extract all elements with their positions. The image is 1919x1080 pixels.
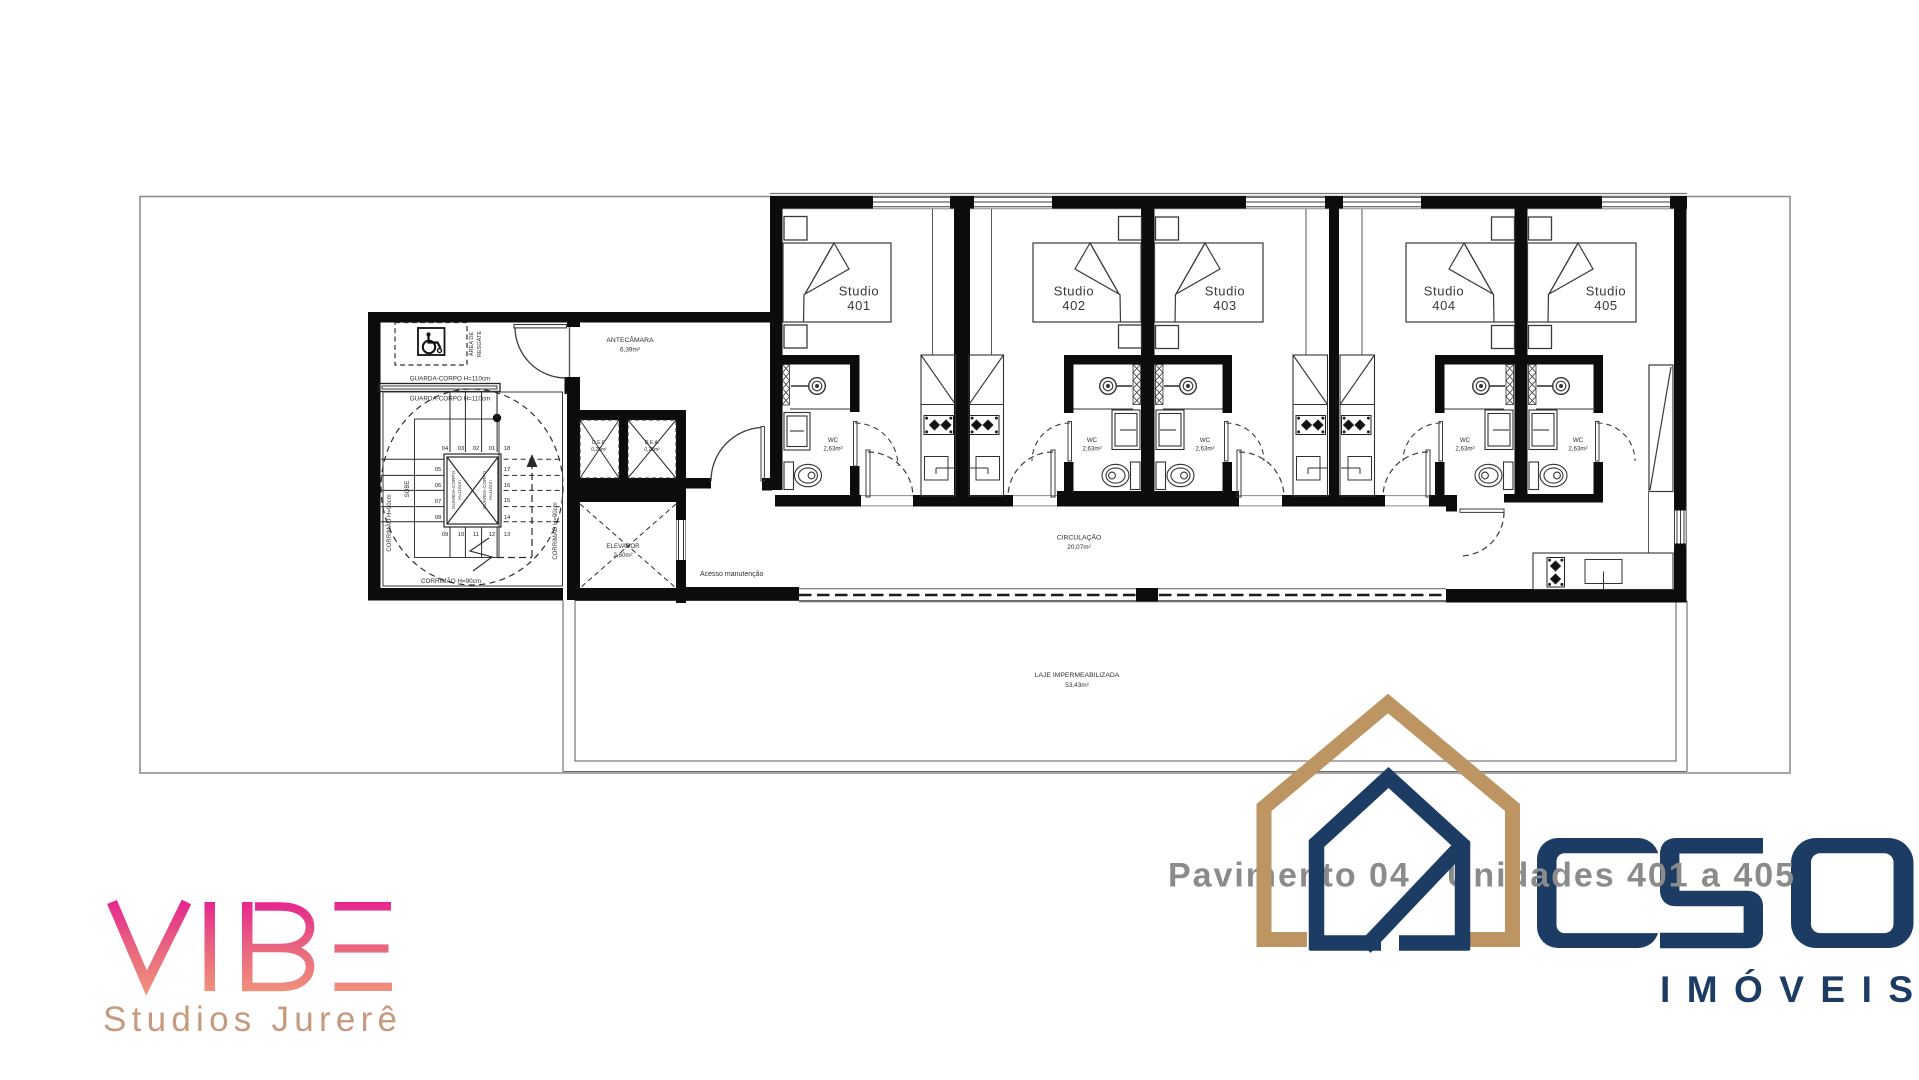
svg-text:405: 405 (1594, 298, 1618, 313)
svg-text:Acesso manutenção: Acesso manutenção (700, 571, 764, 578)
svg-text:11: 11 (473, 532, 479, 538)
svg-text:2,63m²: 2,63m² (823, 446, 842, 453)
svg-text:401: 401 (847, 298, 871, 313)
svg-text:2,63m²: 2,63m² (1568, 446, 1587, 453)
svg-text:2,63m²: 2,63m² (1195, 446, 1214, 453)
svg-text:CORRIMÃO H=90cm: CORRIMÃO H=90cm (552, 502, 559, 559)
svg-text:CORRIMÃO H=90cm: CORRIMÃO H=90cm (421, 576, 481, 585)
svg-text:SOBE: SOBE (405, 481, 411, 498)
svg-text:02: 02 (473, 446, 479, 452)
svg-text:402: 402 (1062, 298, 1086, 313)
svg-text:07: 07 (435, 499, 441, 505)
svg-text:05: 05 (435, 467, 441, 473)
svg-text:WC: WC (1087, 437, 1098, 444)
svg-text:09: 09 (442, 532, 448, 538)
svg-text:LAJE IMPERMEABILIZADA: LAJE IMPERMEABILIZADA (1035, 672, 1120, 679)
svg-text:2,63m²: 2,63m² (1455, 446, 1474, 453)
svg-text:03: 03 (458, 446, 464, 452)
svg-text:06: 06 (435, 483, 441, 489)
svg-text:6,39m²: 6,39m² (620, 347, 640, 354)
svg-text:WC: WC (1460, 437, 1471, 444)
svg-text:15: 15 (504, 498, 510, 504)
svg-text:0,26m²: 0,26m² (591, 447, 607, 453)
svg-text:CORRIMÃO H=90cm: CORRIMÃO H=90cm (386, 494, 393, 551)
svg-text:Studios Jurerê: Studios Jurerê (103, 1000, 397, 1039)
svg-text:18: 18 (504, 446, 510, 452)
svg-text:D.E.A.: D.E.A. (645, 440, 659, 446)
svg-text:01: 01 (489, 446, 495, 452)
svg-text:GUARDA-CORPO H=110cm: GUARDA-CORPO H=110cm (410, 376, 491, 383)
svg-text:16: 16 (504, 483, 510, 489)
svg-text:0,26m²: 0,26m² (644, 447, 660, 453)
svg-text:H=110cm: H=110cm (457, 480, 462, 500)
svg-text:H=110cm: H=110cm (488, 480, 493, 500)
svg-text:ELEVADOR: ELEVADOR (606, 543, 640, 550)
svg-text:2,60m²: 2,60m² (613, 552, 632, 559)
svg-text:403: 403 (1213, 298, 1237, 313)
svg-text:Studio: Studio (839, 284, 879, 299)
svg-text:Studio: Studio (1424, 284, 1464, 299)
svg-text:20,07m²: 20,07m² (1067, 544, 1090, 551)
svg-text:WC: WC (1200, 437, 1211, 444)
svg-text:404: 404 (1432, 298, 1456, 313)
svg-text:10: 10 (458, 532, 464, 538)
svg-text:13: 13 (504, 532, 510, 538)
svg-text:04: 04 (442, 446, 449, 452)
svg-text:WC: WC (828, 437, 839, 444)
svg-text:GUARDA-CORPO: GUARDA-CORPO (482, 471, 487, 509)
svg-text:GUARDA-CORPO: GUARDA-CORPO (451, 471, 456, 509)
svg-text:Studio: Studio (1205, 284, 1245, 299)
svg-text:Studio: Studio (1054, 284, 1094, 299)
svg-text:17: 17 (504, 467, 510, 473)
svg-text:ÁREA DE: ÁREA DE (468, 332, 475, 357)
svg-text:WC: WC (1573, 437, 1584, 444)
svg-text:Studio: Studio (1586, 284, 1626, 299)
svg-text:D.E.P.: D.E.P. (592, 440, 606, 446)
svg-text:CIRCULAÇÃO: CIRCULAÇÃO (1057, 533, 1102, 542)
svg-text:ANTECÂMARA: ANTECÂMARA (606, 335, 654, 344)
svg-text:14: 14 (504, 515, 511, 521)
svg-text:53,43m²: 53,43m² (1065, 682, 1088, 689)
svg-text:2,63m²: 2,63m² (1082, 446, 1101, 453)
svg-text:12: 12 (489, 532, 495, 538)
svg-text:RESGATE: RESGATE (477, 331, 483, 358)
svg-text:08: 08 (435, 515, 441, 521)
